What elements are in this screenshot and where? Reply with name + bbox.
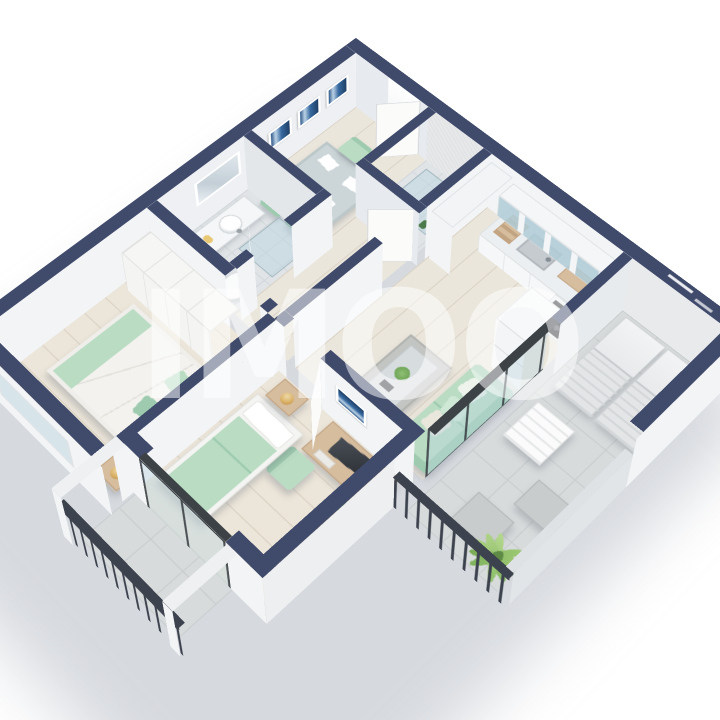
watermark: IMOO xyxy=(138,272,582,422)
wall-art xyxy=(298,95,321,129)
floor-plan-render: IMOO xyxy=(0,0,720,720)
wall-art xyxy=(326,74,348,108)
paper xyxy=(317,154,339,172)
